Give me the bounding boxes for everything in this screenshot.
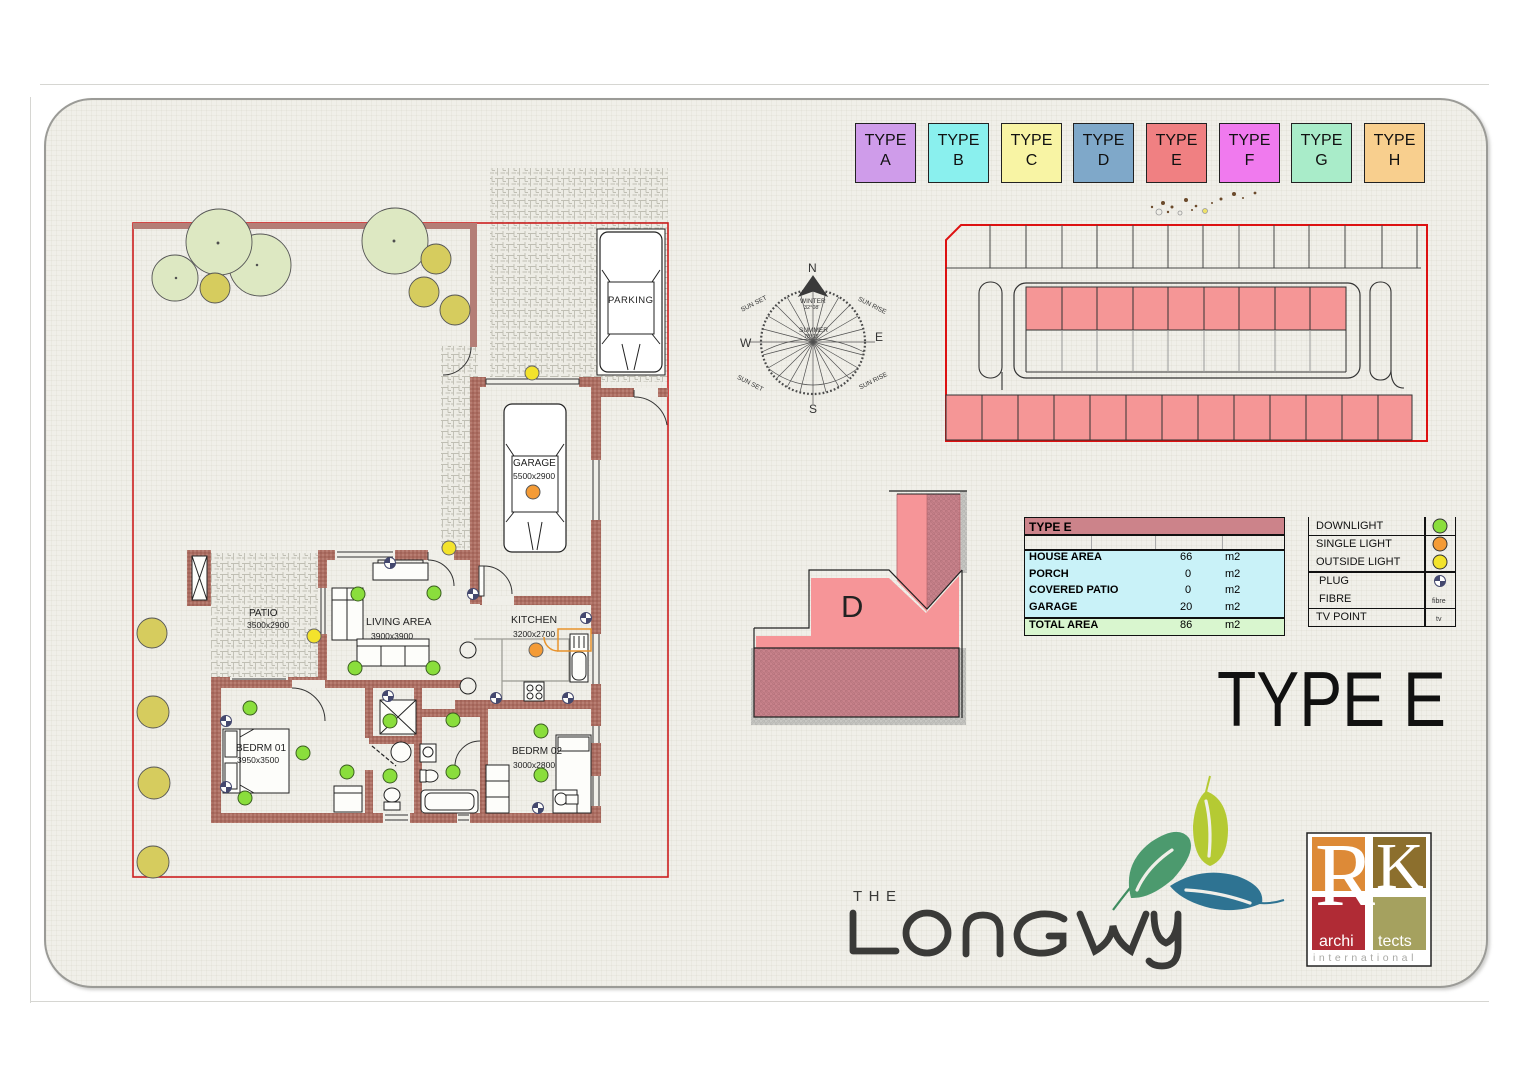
svg-text:PATIO: PATIO <box>249 608 278 619</box>
svg-text:3000x2800: 3000x2800 <box>513 760 555 770</box>
svg-text:D: D <box>841 589 863 624</box>
svg-text:international: international <box>1313 952 1417 964</box>
svg-text:fibre: fibre <box>1432 598 1446 605</box>
svg-text:archi: archi <box>1319 933 1354 950</box>
svg-text:3950x3500: 3950x3500 <box>237 755 279 765</box>
svg-text:SUN RISE: SUN RISE <box>857 296 888 316</box>
svg-text:E: E <box>875 330 883 344</box>
svg-text:5500x2900: 5500x2900 <box>513 471 555 481</box>
svg-text:SUN SET: SUN SET <box>740 295 768 314</box>
svg-text:3500x2900: 3500x2900 <box>247 620 289 630</box>
svg-text:R: R <box>1315 826 1375 925</box>
svg-text:THE: THE <box>853 888 903 905</box>
svg-text:K: K <box>1376 830 1424 903</box>
svg-text:78°05': 78°05' <box>804 334 820 340</box>
svg-text:tv: tv <box>1436 616 1442 623</box>
svg-text:SUN RISE: SUN RISE <box>858 371 889 391</box>
svg-text:BEDRM 01: BEDRM 01 <box>236 743 286 754</box>
svg-text:3200x2700: 3200x2700 <box>513 629 555 639</box>
svg-text:PARKING: PARKING <box>608 295 654 306</box>
svg-text:BEDRM 02: BEDRM 02 <box>512 746 562 757</box>
svg-text:SUMMER: SUMMER <box>799 327 828 334</box>
svg-text:SUN SET: SUN SET <box>736 374 764 393</box>
svg-text:W: W <box>740 336 752 350</box>
svg-text:KITCHEN: KITCHEN <box>511 614 557 626</box>
svg-text:32°08': 32°08' <box>804 305 820 311</box>
svg-text:tects: tects <box>1378 933 1412 950</box>
svg-text:WINTER: WINTER <box>800 298 826 305</box>
svg-text:GARAGE: GARAGE <box>513 458 556 469</box>
svg-text:S: S <box>809 402 817 416</box>
svg-text:LIVING AREA: LIVING AREA <box>366 616 431 628</box>
svg-text:N: N <box>808 261 817 275</box>
svg-text:3900x3900: 3900x3900 <box>371 631 413 641</box>
